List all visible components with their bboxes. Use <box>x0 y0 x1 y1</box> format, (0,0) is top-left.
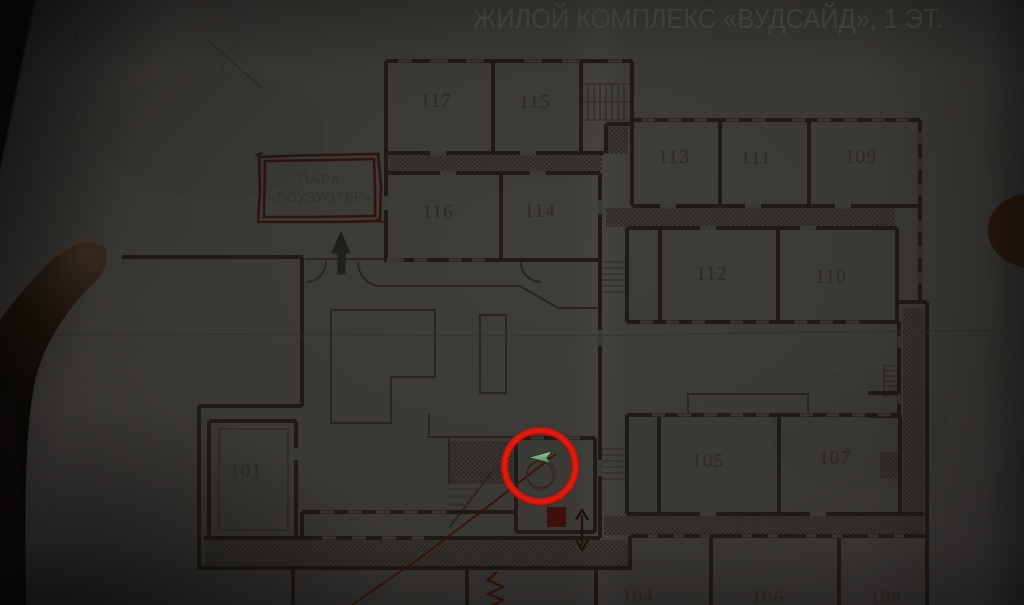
svg-text:112: 112 <box>696 264 728 285</box>
svg-text:110: 110 <box>815 267 847 288</box>
svg-text:104: 104 <box>622 586 654 605</box>
svg-text:101: 101 <box>230 461 262 482</box>
svg-text:117: 117 <box>420 91 452 112</box>
svg-text:113: 113 <box>658 147 690 168</box>
svg-text:108: 108 <box>870 588 902 605</box>
svg-text:115: 115 <box>519 92 551 113</box>
svg-text:116: 116 <box>422 202 454 223</box>
svg-text:114: 114 <box>524 201 556 222</box>
svg-text:109: 109 <box>845 147 877 168</box>
svg-text:«РОУЗУОТЕР»: «РОУЗУОТЕР» <box>268 189 371 205</box>
svg-text:ЖИЛОЙ КОМПЛЕКС «ВУДСАЙД», 1 ЭТ: ЖИЛОЙ КОМПЛЕКС «ВУДСАЙД», 1 ЭТ. <box>473 3 943 34</box>
svg-text:105: 105 <box>692 451 724 472</box>
svg-text:111: 111 <box>741 148 772 169</box>
svg-text:ПАРК: ПАРК <box>299 171 342 187</box>
svg-text:106: 106 <box>752 588 784 605</box>
